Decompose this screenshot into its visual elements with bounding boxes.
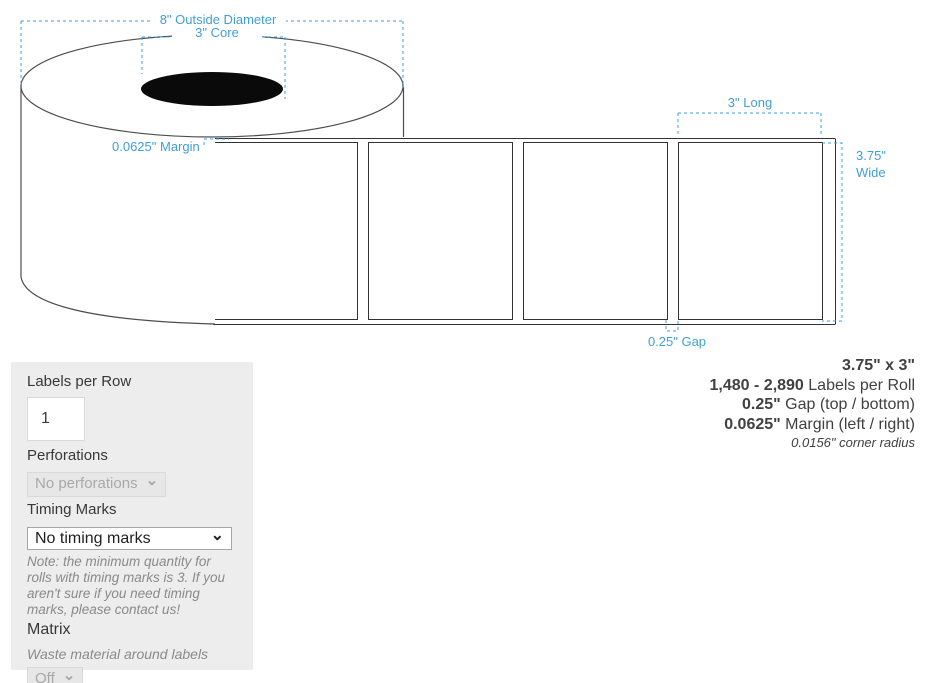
label-rect-1 — [214, 143, 358, 320]
spec-corner-radius: 0.0156" corner radius — [710, 434, 915, 452]
timing-marks-selected-value: No timing marks — [35, 530, 151, 548]
perforations-selected-value: No perforations — [35, 475, 138, 492]
matrix-label: Matrix — [27, 621, 237, 639]
core-label: 3" Core — [172, 26, 262, 40]
spec-margin: 0.0625" Margin (left / right) — [710, 415, 915, 435]
label-rect-4 — [679, 143, 823, 320]
spec-gap: 0.25" Gap (top / bottom) — [710, 395, 915, 415]
spec-size: 3.75" x 3" — [710, 356, 915, 376]
roll-core — [141, 72, 283, 106]
matrix-description: Waste material around labels — [27, 646, 237, 662]
timing-marks-select[interactable]: No timing marks ⌄ — [27, 527, 232, 550]
labels-per-row-input[interactable] — [27, 397, 85, 441]
timing-marks-label: Timing Marks — [27, 501, 237, 518]
label-strip — [204, 139, 836, 325]
timing-marks-note: Note: the minimum quantity for rolls wit… — [27, 554, 237, 618]
chevron-down-icon: ⌄ — [63, 672, 76, 680]
perforations-label: Perforations — [27, 447, 237, 464]
label-rect-3 — [524, 143, 668, 320]
matrix-select[interactable]: Off ⌄ — [27, 667, 83, 683]
spec-labels-per-roll: 1,480 - 2,890 Labels per Roll — [710, 376, 915, 396]
wide-label: 3.75" Wide — [856, 147, 908, 181]
matrix-selected-value: Off — [35, 670, 55, 683]
perforations-select[interactable]: No perforations ⌄ — [27, 472, 166, 497]
chevron-down-icon: ⌄ — [211, 532, 224, 540]
chevron-down-icon: ⌄ — [146, 477, 159, 485]
labels-per-row-label: Labels per Row — [27, 373, 237, 390]
label-rect-2 — [369, 143, 513, 320]
long-label: 3" Long — [700, 96, 800, 110]
margin-label: 0.0625" Margin — [112, 140, 197, 154]
options-panel: Labels per Row Perforations No perforati… — [11, 362, 253, 670]
label-specs: 3.75" x 3" 1,480 - 2,890 Labels per Roll… — [710, 356, 915, 452]
gap-label: 0.25" Gap — [632, 335, 722, 349]
label-roll-configurator: 8" Outside Diameter 3" Core 0.0625" Marg… — [0, 0, 928, 683]
